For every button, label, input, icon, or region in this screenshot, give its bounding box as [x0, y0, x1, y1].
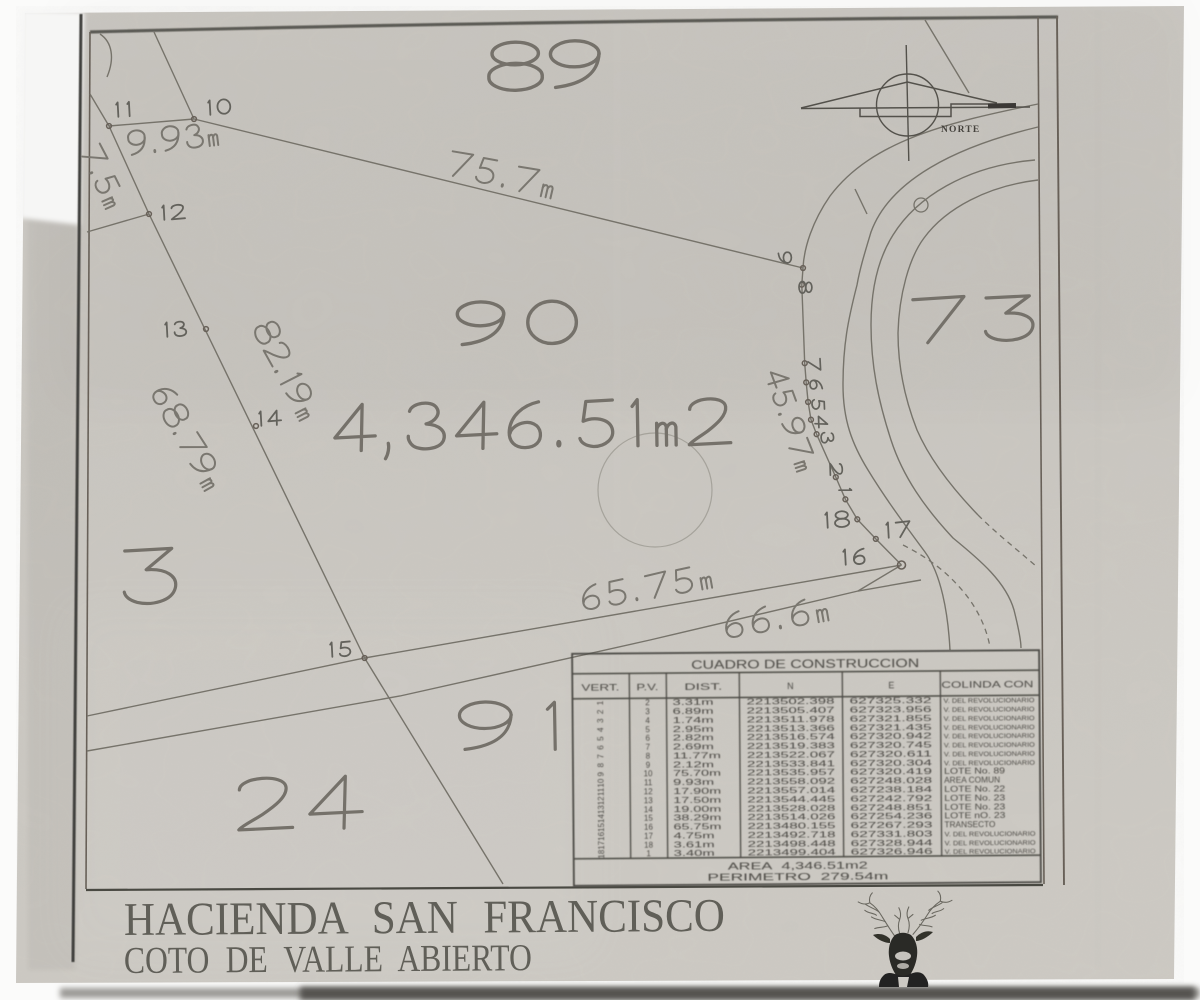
svg-text:V. DEL REVOLUCIONARIO: V. DEL REVOLUCIONARIO	[944, 751, 1035, 759]
svg-text:NORTE: NORTE	[941, 125, 980, 135]
svg-text:VERT.: VERT.	[581, 682, 619, 692]
svg-text:65.75m: 65.75m	[673, 822, 722, 831]
svg-text:PERIMETRO 279.54m: PERIMETRO 279.54m	[707, 870, 888, 883]
svg-text:75.70m: 75.70m	[673, 769, 722, 778]
svg-text:11: 11	[644, 778, 653, 787]
svg-text:14: 14	[597, 814, 606, 824]
svg-text:4.75m: 4.75m	[673, 831, 715, 840]
svg-text:6: 6	[596, 745, 605, 750]
svg-text:6.89m: 6.89m	[673, 707, 715, 716]
svg-text:COLINDA CON: COLINDA CON	[941, 679, 1033, 690]
svg-text:2.69m: 2.69m	[673, 742, 715, 751]
svg-text:4: 4	[645, 716, 650, 725]
svg-text:18: 18	[597, 849, 606, 859]
svg-text:13: 13	[644, 796, 654, 805]
svg-text:2.12m: 2.12m	[673, 760, 715, 769]
svg-text:COTO DE VALLE ABIERTO: COTO DE VALLE ABIERTO	[124, 937, 532, 982]
svg-text:V. DEL REVOLUCIONARIO: V. DEL REVOLUCIONARIO	[944, 742, 1035, 750]
svg-text:4: 4	[596, 727, 605, 732]
svg-text:8: 8	[646, 752, 651, 761]
svg-text:16: 16	[644, 823, 654, 832]
svg-text:6: 6	[646, 734, 651, 743]
svg-text:2213499.404: 2213499.404	[748, 848, 837, 858]
svg-text:V. DEL REVOLUCIONARIO: V. DEL REVOLUCIONARIO	[944, 706, 1035, 714]
svg-text:7: 7	[596, 754, 605, 759]
svg-text:CUADRO DE CONSTRUCCION: CUADRO DE CONSTRUCCION	[691, 658, 919, 672]
svg-text:V. DEL REVOLUCIONARIO: V. DEL REVOLUCIONARIO	[944, 715, 1035, 723]
svg-text:11: 11	[597, 787, 606, 796]
svg-text:5: 5	[645, 725, 650, 734]
svg-text:15: 15	[644, 814, 654, 823]
svg-text:18: 18	[644, 840, 654, 849]
svg-text:2: 2	[645, 698, 650, 707]
svg-text:V. DEL REVOLUCIONARIO: V. DEL REVOLUCIONARIO	[943, 697, 1034, 705]
svg-text:14: 14	[644, 805, 654, 814]
svg-text:15: 15	[597, 822, 606, 832]
svg-text:1: 1	[646, 849, 651, 858]
svg-text:3: 3	[645, 707, 650, 716]
svg-text:17: 17	[597, 840, 606, 850]
svg-text:E: E	[888, 680, 894, 690]
svg-text:TRANSECTO: TRANSECTO	[944, 820, 995, 829]
svg-text:P.V.: P.V.	[636, 682, 658, 692]
svg-text:V. DEL REVOLUCIONARIO: V. DEL REVOLUCIONARIO	[945, 848, 1036, 856]
svg-text:N: N	[787, 681, 794, 691]
svg-text:3.31m: 3.31m	[672, 698, 714, 707]
svg-text:LOTE nO. 23: LOTE nO. 23	[944, 811, 1006, 820]
svg-text:8: 8	[596, 762, 605, 767]
svg-text:DIST.: DIST.	[684, 682, 722, 692]
svg-text:1.74m: 1.74m	[673, 716, 715, 725]
svg-text:3.61m: 3.61m	[674, 840, 716, 849]
svg-text:12: 12	[644, 787, 654, 796]
svg-text:3.40m: 3.40m	[674, 849, 716, 858]
svg-text:V. DEL REVOLUCIONARIO: V. DEL REVOLUCIONARIO	[945, 839, 1036, 847]
svg-text:1: 1	[596, 700, 605, 705]
svg-text:2.95m: 2.95m	[673, 725, 715, 734]
svg-text:10: 10	[644, 769, 654, 778]
svg-text:9.93m: 9.93m	[673, 778, 715, 787]
svg-text:16: 16	[597, 831, 606, 841]
svg-text:10: 10	[597, 778, 606, 788]
svg-text:V. DEL REVOLUCIONARIO: V. DEL REVOLUCIONARIO	[944, 733, 1035, 741]
svg-text:V. DEL REVOLUCIONARIO: V. DEL REVOLUCIONARIO	[944, 724, 1035, 732]
svg-text:17: 17	[644, 832, 654, 841]
svg-text:12: 12	[597, 796, 606, 806]
svg-text:5: 5	[596, 736, 605, 741]
svg-text:7: 7	[646, 743, 651, 752]
svg-text:3: 3	[596, 718, 605, 723]
svg-text:9: 9	[646, 761, 651, 770]
svg-text:13: 13	[597, 805, 606, 815]
svg-text:9: 9	[597, 771, 606, 776]
svg-text:V. DEL REVOLUCIONARIO: V. DEL REVOLUCIONARIO	[945, 831, 1036, 839]
svg-text:627326.946: 627326.946	[851, 847, 934, 857]
svg-text:11.77m: 11.77m	[673, 751, 722, 760]
svg-text:2: 2	[596, 709, 605, 714]
